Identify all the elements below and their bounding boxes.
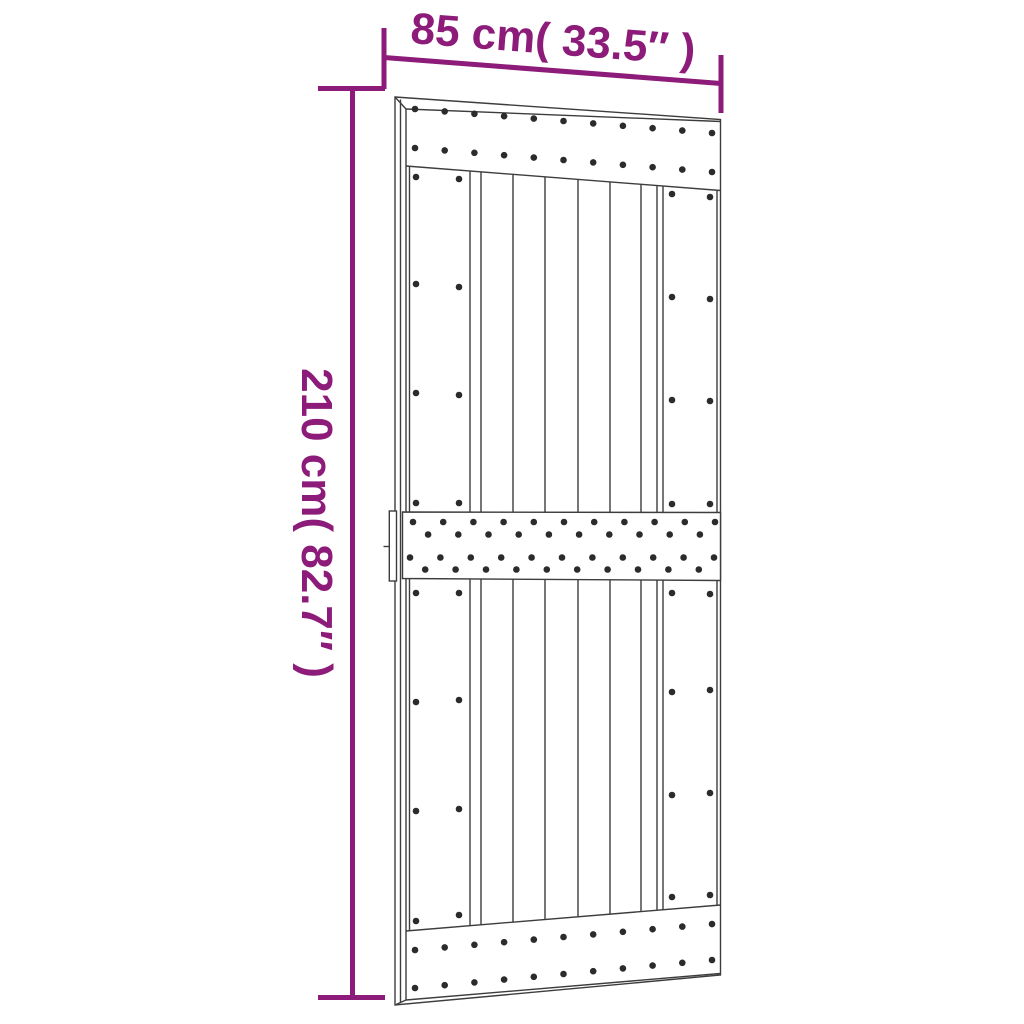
screw-dot bbox=[590, 931, 597, 938]
screw-dot bbox=[669, 894, 676, 901]
screw-dot bbox=[413, 808, 420, 815]
screw-dot bbox=[531, 154, 538, 161]
screw-dot bbox=[456, 500, 463, 507]
screw-dot bbox=[501, 113, 508, 120]
screw-dot bbox=[413, 281, 420, 288]
screw-dot bbox=[649, 164, 656, 171]
screw-dot bbox=[669, 191, 676, 198]
screw-dot bbox=[620, 554, 627, 561]
screw-dot bbox=[441, 147, 448, 154]
screw-dot bbox=[546, 531, 553, 538]
screw-dot bbox=[531, 973, 538, 980]
screw-dot bbox=[440, 519, 447, 526]
screw-dot bbox=[709, 169, 716, 176]
screw-dot bbox=[709, 957, 716, 964]
handle-bar bbox=[389, 511, 396, 581]
screw-dot bbox=[711, 554, 718, 561]
screw-dot bbox=[679, 959, 686, 966]
screw-dot bbox=[407, 554, 414, 561]
screw-dot bbox=[696, 566, 703, 573]
screw-dot bbox=[574, 566, 581, 573]
screw-dot bbox=[437, 554, 444, 561]
height-dimension-label: 210 cm( 82.7″ ) bbox=[292, 368, 341, 678]
screw-dot bbox=[531, 115, 538, 122]
screw-dot bbox=[470, 519, 477, 526]
screw-dot bbox=[528, 554, 535, 561]
screw-dot bbox=[590, 159, 597, 166]
screw-dot bbox=[590, 120, 597, 127]
screw-dot bbox=[410, 519, 417, 526]
screw-dot bbox=[707, 790, 714, 797]
screw-dot bbox=[413, 500, 420, 507]
screw-dot bbox=[682, 519, 689, 526]
screw-dot bbox=[576, 531, 583, 538]
screw-dot bbox=[425, 531, 432, 538]
diagram-canvas: 85 cm( 33.5″ ) 210 cm( 82.7″ ) bbox=[0, 0, 1024, 1024]
screw-dot bbox=[413, 699, 420, 706]
height-dimension: 210 cm( 82.7″ ) bbox=[292, 89, 385, 998]
screw-dot bbox=[501, 152, 508, 159]
screw-dot bbox=[559, 554, 566, 561]
screw-dot bbox=[422, 566, 429, 573]
screw-dot bbox=[649, 926, 656, 933]
door-handle bbox=[384, 511, 397, 581]
screw-dot bbox=[560, 971, 567, 978]
screw-dot bbox=[412, 985, 419, 992]
screw-dot bbox=[412, 947, 419, 954]
screw-dot bbox=[620, 929, 627, 936]
screw-dot bbox=[441, 108, 448, 115]
screw-dot bbox=[669, 397, 676, 404]
product-dimension-diagram: 85 cm( 33.5″ ) 210 cm( 82.7″ ) bbox=[0, 0, 1024, 1024]
screw-dot bbox=[456, 697, 463, 704]
screw-dot bbox=[679, 923, 686, 930]
door-illustration bbox=[384, 97, 721, 1005]
screw-dot bbox=[501, 939, 508, 946]
screw-dot bbox=[498, 554, 505, 561]
screw-dot bbox=[500, 519, 507, 526]
screw-dot bbox=[707, 501, 714, 508]
screw-dot bbox=[455, 531, 462, 538]
screw-dot bbox=[531, 519, 538, 526]
screw-dot bbox=[707, 194, 714, 201]
screw-dot bbox=[669, 501, 676, 508]
screw-dot bbox=[591, 519, 598, 526]
screw-dot bbox=[635, 566, 642, 573]
screw-dot bbox=[485, 531, 492, 538]
screw-dot bbox=[604, 566, 611, 573]
screw-dot bbox=[501, 976, 508, 983]
screw-dot bbox=[561, 519, 568, 526]
screw-dot bbox=[515, 531, 522, 538]
screw-dot bbox=[471, 979, 478, 986]
screw-dot bbox=[590, 968, 597, 975]
screw-dot bbox=[669, 590, 676, 597]
screw-dot bbox=[560, 934, 567, 941]
screw-dot bbox=[665, 566, 672, 573]
screw-dot bbox=[709, 921, 716, 928]
screw-dot bbox=[649, 962, 656, 969]
screw-dot bbox=[636, 531, 643, 538]
screw-dot bbox=[620, 965, 627, 972]
screw-dot bbox=[712, 519, 719, 526]
screw-dot bbox=[413, 174, 420, 181]
screw-dot bbox=[620, 122, 627, 129]
screw-dot bbox=[697, 531, 704, 538]
screw-dot bbox=[621, 519, 628, 526]
screw-dot bbox=[707, 398, 714, 405]
screw-dot bbox=[680, 554, 687, 561]
screw-dot bbox=[669, 294, 676, 301]
screw-dot bbox=[707, 892, 714, 899]
screw-dot bbox=[560, 118, 567, 125]
screw-dot bbox=[471, 110, 478, 117]
screw-dot bbox=[456, 392, 463, 399]
screw-dot bbox=[666, 531, 673, 538]
screw-dot bbox=[456, 806, 463, 813]
screw-dot bbox=[483, 566, 490, 573]
screw-dot bbox=[441, 944, 448, 951]
screw-dot bbox=[413, 390, 420, 397]
screw-dot bbox=[531, 936, 538, 943]
screw-dot bbox=[560, 157, 567, 164]
screw-dot bbox=[679, 166, 686, 173]
screw-dot bbox=[620, 161, 627, 168]
width-dimension: 85 cm( 33.5″ ) bbox=[384, 4, 721, 113]
screw-dot bbox=[650, 554, 657, 561]
screw-dot bbox=[707, 687, 714, 694]
screw-dot bbox=[471, 149, 478, 156]
screw-dot bbox=[679, 127, 686, 134]
screw-dot bbox=[606, 531, 613, 538]
screw-dot bbox=[413, 918, 420, 925]
screw-dot bbox=[456, 590, 463, 597]
screw-dot bbox=[707, 591, 714, 598]
screw-dot bbox=[651, 519, 658, 526]
screw-dot bbox=[456, 176, 463, 183]
screw-dot bbox=[456, 912, 463, 919]
screw-dot bbox=[412, 106, 419, 113]
screw-dot bbox=[513, 566, 520, 573]
screw-dot bbox=[709, 130, 716, 137]
screw-dot bbox=[452, 566, 459, 573]
screw-dot bbox=[707, 296, 714, 303]
screw-dot bbox=[544, 566, 551, 573]
screw-dot bbox=[669, 792, 676, 799]
screw-dot bbox=[456, 284, 463, 291]
screw-dot bbox=[413, 590, 420, 597]
screw-dot bbox=[412, 145, 419, 152]
screw-dot bbox=[441, 982, 448, 989]
screw-dot bbox=[468, 554, 475, 561]
screw-dot bbox=[589, 554, 596, 561]
screw-dot bbox=[471, 942, 478, 949]
screw-dot bbox=[669, 689, 676, 696]
screw-dot bbox=[649, 125, 656, 132]
